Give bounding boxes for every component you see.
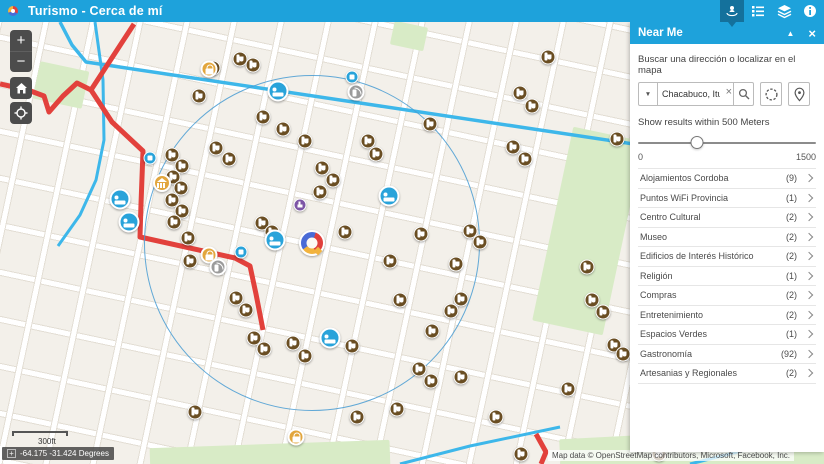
chevron-right-icon bbox=[805, 311, 813, 319]
marker-gastro[interactable] bbox=[610, 132, 625, 147]
marker-wifi[interactable] bbox=[210, 259, 227, 276]
marker-gastro[interactable] bbox=[580, 260, 595, 275]
zoom-controls: + − bbox=[10, 30, 32, 72]
marker-gastro[interactable] bbox=[518, 152, 533, 167]
marker-gastro[interactable] bbox=[239, 303, 254, 318]
app-title: Turismo - Cerca de mí bbox=[28, 0, 163, 22]
near-me-tool-button[interactable] bbox=[720, 0, 744, 22]
category-label: Alojamientos Cordoba bbox=[640, 173, 786, 183]
category-count: (2) bbox=[786, 251, 797, 261]
marker-gastro[interactable] bbox=[338, 225, 353, 240]
marker-gastro[interactable] bbox=[167, 215, 182, 230]
info-tool-button[interactable] bbox=[798, 0, 822, 22]
marker-gastro[interactable] bbox=[390, 402, 405, 417]
category-count: (2) bbox=[786, 290, 797, 300]
marker-hotel[interactable] bbox=[268, 81, 289, 102]
category-count: (2) bbox=[786, 310, 797, 320]
chevron-right-icon bbox=[805, 174, 813, 182]
category-label: Centro Cultural bbox=[640, 212, 786, 222]
category-row[interactable]: Museo(2) bbox=[638, 228, 816, 248]
category-label: Artesanias y Regionales bbox=[640, 368, 786, 378]
zoom-out-button[interactable]: − bbox=[10, 51, 32, 72]
marker-historic[interactable] bbox=[153, 174, 171, 192]
marker-gastro[interactable] bbox=[616, 347, 631, 362]
marker-gastro[interactable] bbox=[183, 254, 198, 269]
marker-culture[interactable] bbox=[235, 246, 248, 259]
marker-gastro[interactable] bbox=[489, 410, 504, 425]
coordinates-widget: + -64.175 -31.424 Degrees bbox=[2, 447, 114, 460]
info-icon bbox=[803, 4, 817, 18]
marker-gastro[interactable] bbox=[596, 305, 611, 320]
chevron-right-icon bbox=[805, 194, 813, 202]
my-location-button[interactable] bbox=[10, 102, 32, 124]
locate-me-button[interactable] bbox=[760, 82, 782, 106]
marker-gastro[interactable] bbox=[525, 99, 540, 114]
marker-gastro[interactable] bbox=[345, 339, 360, 354]
category-row[interactable]: Centro Cultural(2) bbox=[638, 208, 816, 228]
search-button[interactable] bbox=[734, 82, 754, 106]
marker-hotel[interactable] bbox=[110, 189, 131, 210]
home-icon bbox=[15, 82, 28, 95]
category-row[interactable]: Artesanias y Regionales(2) bbox=[638, 364, 816, 384]
drop-pin-button[interactable] bbox=[788, 82, 810, 106]
layers-tool-button[interactable] bbox=[772, 0, 796, 22]
category-count: (2) bbox=[786, 368, 797, 378]
marker-gastro[interactable] bbox=[425, 324, 440, 339]
marker-gastro[interactable] bbox=[350, 410, 365, 425]
category-label: Museo bbox=[640, 232, 786, 242]
chevron-right-icon bbox=[805, 369, 813, 377]
slider-track[interactable] bbox=[638, 142, 816, 144]
coordinates-value: -64.175 -31.424 Degrees bbox=[20, 449, 109, 458]
scale-bar-label: 300ft bbox=[38, 437, 56, 446]
clear-search-icon[interactable]: × bbox=[726, 87, 732, 98]
legend-tool-button[interactable] bbox=[746, 0, 770, 22]
marker-hotel[interactable] bbox=[119, 212, 140, 233]
slider-handle[interactable] bbox=[691, 136, 704, 149]
scale-bar bbox=[12, 431, 68, 436]
category-row[interactable]: Edificios de Interés Histórico(2) bbox=[638, 247, 816, 267]
chevron-right-icon bbox=[805, 252, 813, 260]
park-area bbox=[390, 21, 428, 52]
marker-gastro[interactable] bbox=[257, 342, 272, 357]
chevron-right-icon bbox=[805, 272, 813, 280]
chevron-right-icon bbox=[805, 350, 813, 358]
category-row[interactable]: Alojamientos Cordoba(9) bbox=[638, 169, 816, 189]
slider-range-labels: 0 1500 bbox=[638, 152, 816, 162]
home-extent-button[interactable] bbox=[10, 77, 32, 99]
panel-fold-icon[interactable]: ▲ bbox=[786, 29, 794, 38]
category-count: (1) bbox=[786, 193, 797, 203]
chevron-right-icon bbox=[805, 213, 813, 221]
marker-culture[interactable] bbox=[346, 71, 359, 84]
marker-gastro[interactable] bbox=[298, 134, 313, 149]
category-count: (1) bbox=[786, 271, 797, 281]
app-window: Turismo - Cerca de mí bbox=[0, 0, 824, 464]
marker-shop[interactable] bbox=[288, 429, 305, 446]
panel-close-icon[interactable]: × bbox=[808, 27, 816, 40]
marker-wifi[interactable] bbox=[348, 84, 365, 101]
marker-gastro[interactable] bbox=[209, 141, 224, 156]
marker-gastro[interactable] bbox=[454, 370, 469, 385]
marker-hotel[interactable] bbox=[379, 186, 400, 207]
marker-shop[interactable] bbox=[201, 61, 218, 78]
marker-gastro[interactable] bbox=[298, 349, 313, 364]
near-me-panel: Near Me ▲ × Buscar una dirección o local… bbox=[630, 22, 824, 452]
search-icon bbox=[738, 88, 750, 100]
marker-gastro[interactable] bbox=[188, 405, 203, 420]
legend-icon bbox=[751, 4, 765, 18]
marker-gastro[interactable] bbox=[276, 122, 291, 137]
chevron-right-icon bbox=[805, 291, 813, 299]
marker-gastro[interactable] bbox=[383, 254, 398, 269]
marker-religion[interactable] bbox=[294, 199, 307, 212]
marker-gastro[interactable] bbox=[222, 152, 237, 167]
slider-min-label: 0 bbox=[638, 152, 643, 162]
marker-gastro[interactable] bbox=[561, 382, 576, 397]
marker-hotel[interactable] bbox=[265, 230, 286, 251]
map-pin-icon bbox=[793, 87, 806, 102]
marker-gastro[interactable] bbox=[473, 235, 488, 250]
category-label: Compras bbox=[640, 290, 786, 300]
header-toolbar bbox=[718, 0, 822, 22]
category-label: Religión bbox=[640, 271, 786, 281]
park-area bbox=[150, 440, 391, 464]
marker-gastro[interactable] bbox=[423, 117, 438, 132]
category-label: Puntos WiFi Provincia bbox=[640, 193, 786, 203]
near-me-panel-body: Buscar una dirección o localizar en el m… bbox=[630, 44, 824, 392]
marker-gastro[interactable] bbox=[444, 304, 459, 319]
marker-gastro[interactable] bbox=[369, 147, 384, 162]
near-me-panel-header: Near Me ▲ × bbox=[630, 22, 824, 44]
chevron-right-icon bbox=[805, 330, 813, 338]
park-area bbox=[33, 61, 90, 109]
category-label: Entretenimiento bbox=[640, 310, 786, 320]
search-instruction-label: Buscar una dirección o localizar en el m… bbox=[638, 54, 816, 76]
marker-culture[interactable] bbox=[144, 152, 157, 165]
category-row[interactable]: Gastronomía(92) bbox=[638, 345, 816, 365]
category-label: Edificios de Interés Histórico bbox=[640, 251, 786, 261]
marker-gastro[interactable] bbox=[412, 362, 427, 377]
category-count: (2) bbox=[786, 232, 797, 242]
marker-gastro[interactable] bbox=[286, 336, 301, 351]
slider-max-label: 1500 bbox=[796, 152, 816, 162]
coordinate-capture-icon[interactable]: + bbox=[7, 449, 16, 458]
buffer-distance-label: Show results within 500 Meters bbox=[638, 117, 816, 128]
near-me-icon bbox=[725, 4, 739, 18]
chevron-right-icon bbox=[805, 233, 813, 241]
search-row: ▼ × bbox=[638, 82, 816, 106]
marker-gastro[interactable] bbox=[449, 257, 464, 272]
category-label: Espacios Verdes bbox=[640, 329, 786, 339]
category-count: (9) bbox=[786, 173, 797, 183]
category-row[interactable]: Puntos WiFi Provincia(1) bbox=[638, 189, 816, 209]
app-header: Turismo - Cerca de mí bbox=[0, 0, 824, 22]
marker-gastro[interactable] bbox=[256, 110, 271, 125]
layers-icon bbox=[777, 4, 792, 19]
category-row[interactable]: Compras(2) bbox=[638, 286, 816, 306]
category-row[interactable]: Religión(1) bbox=[638, 267, 816, 287]
marker-gastro[interactable] bbox=[313, 185, 328, 200]
buffer-distance-slider bbox=[638, 136, 816, 150]
marker-hotel[interactable] bbox=[320, 328, 341, 349]
marker-gastro[interactable] bbox=[326, 173, 341, 188]
marker-gastro[interactable] bbox=[506, 140, 521, 155]
panel-title: Near Me bbox=[638, 27, 786, 39]
category-results-list: Alojamientos Cordoba(9)Puntos WiFi Provi… bbox=[638, 168, 816, 384]
search-input[interactable] bbox=[658, 82, 734, 106]
marker-gastro[interactable] bbox=[414, 227, 429, 242]
marker-gastro[interactable] bbox=[393, 293, 408, 308]
zoom-in-button[interactable]: + bbox=[10, 30, 32, 51]
search-source-dropdown[interactable]: ▼ bbox=[638, 82, 658, 106]
category-count: (1) bbox=[786, 329, 797, 339]
app-logo-icon bbox=[8, 6, 18, 16]
marker-gastro[interactable] bbox=[181, 231, 196, 246]
gps-circle-icon bbox=[764, 87, 779, 102]
category-label: Gastronomía bbox=[640, 349, 781, 359]
marker-gastro[interactable] bbox=[246, 58, 261, 73]
category-row[interactable]: Espacios Verdes(1) bbox=[638, 325, 816, 345]
marker-gastro[interactable] bbox=[424, 374, 439, 389]
marker-gastro[interactable] bbox=[541, 50, 556, 65]
marker-gastro[interactable] bbox=[513, 86, 528, 101]
locate-icon bbox=[14, 106, 28, 120]
category-row[interactable]: Entretenimiento(2) bbox=[638, 306, 816, 326]
marker-gastro[interactable] bbox=[514, 447, 529, 462]
category-count: (92) bbox=[781, 349, 797, 359]
marker-logo[interactable] bbox=[299, 230, 325, 256]
category-count: (2) bbox=[786, 212, 797, 222]
marker-gastro[interactable] bbox=[192, 89, 207, 104]
